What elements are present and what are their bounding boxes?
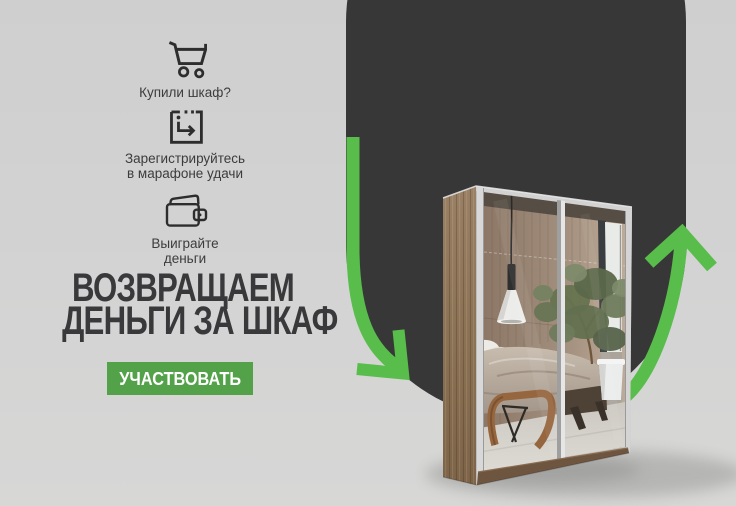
wallet-icon bbox=[161, 190, 209, 232]
promo-banner: Купили шкаф? Зарегистрируйтесь в марафон… bbox=[0, 0, 736, 506]
headline-line2: ДЕНЬГИ ЗА ШКАФ bbox=[62, 305, 304, 338]
step-label-line: деньги bbox=[100, 252, 270, 267]
step-label-line: в марафоне удачи bbox=[100, 167, 270, 182]
step-bought-wardrobe: Купили шкаф? bbox=[100, 37, 270, 101]
step-register: Зарегистрируйтесь в марафоне удачи bbox=[100, 104, 270, 181]
register-icon bbox=[164, 104, 207, 147]
step-label-line: Выиграйте bbox=[100, 237, 270, 252]
wardrobe-photo bbox=[443, 184, 634, 485]
step-win-money: Выиграйте деньги bbox=[100, 190, 270, 266]
step-label: Купили шкаф? bbox=[100, 86, 270, 101]
shopping-cart-icon bbox=[163, 37, 207, 81]
participate-button[interactable]: УЧАСТВОВАТЬ bbox=[107, 362, 253, 395]
headline: ВОЗВРАЩАЕМ ДЕНЬГИ ЗА ШКАФ bbox=[28, 272, 338, 338]
step-label-line: Зарегистрируйтесь bbox=[100, 152, 270, 167]
mirror-reflection bbox=[464, 184, 634, 482]
participate-button-label: УЧАСТВОВАТЬ bbox=[119, 368, 241, 390]
